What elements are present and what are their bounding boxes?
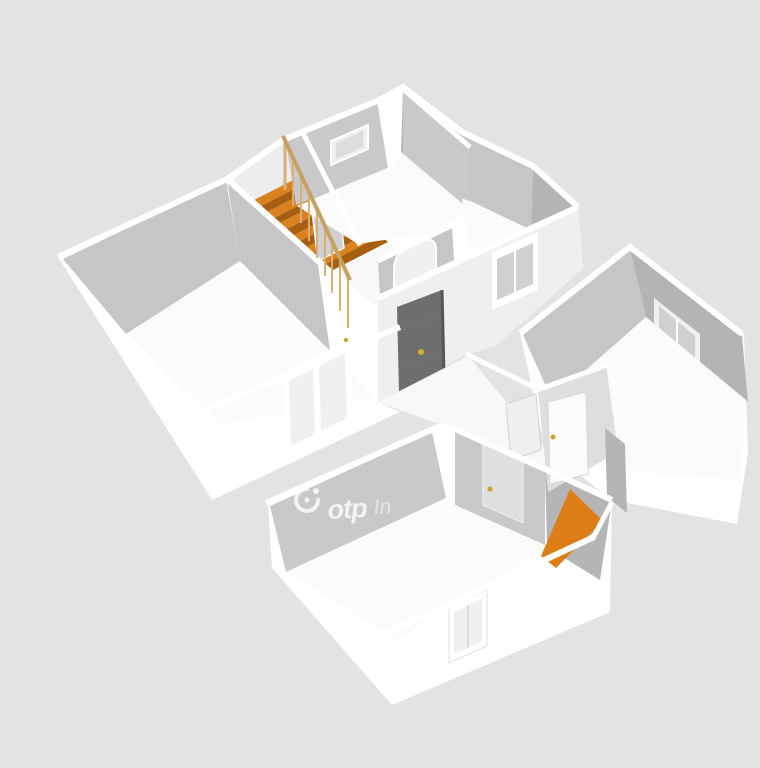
window-glass — [319, 353, 347, 431]
watermark-brand-text: otp — [327, 493, 368, 525]
entry-door-knob — [418, 349, 424, 355]
otp-logo-dot — [313, 488, 319, 494]
corridor-open-door — [506, 394, 541, 460]
door-handle — [551, 435, 556, 440]
entry-door-edge — [442, 290, 444, 376]
door-handle — [488, 487, 493, 492]
door-handle-mark — [344, 338, 348, 342]
floorplan-canvas: otp In — [0, 0, 760, 768]
window-glass — [289, 369, 315, 446]
floorplan-3d-view: otp In — [0, 0, 760, 768]
watermark-suffix-text: In — [373, 495, 392, 519]
otp-logo-dot — [305, 498, 310, 503]
